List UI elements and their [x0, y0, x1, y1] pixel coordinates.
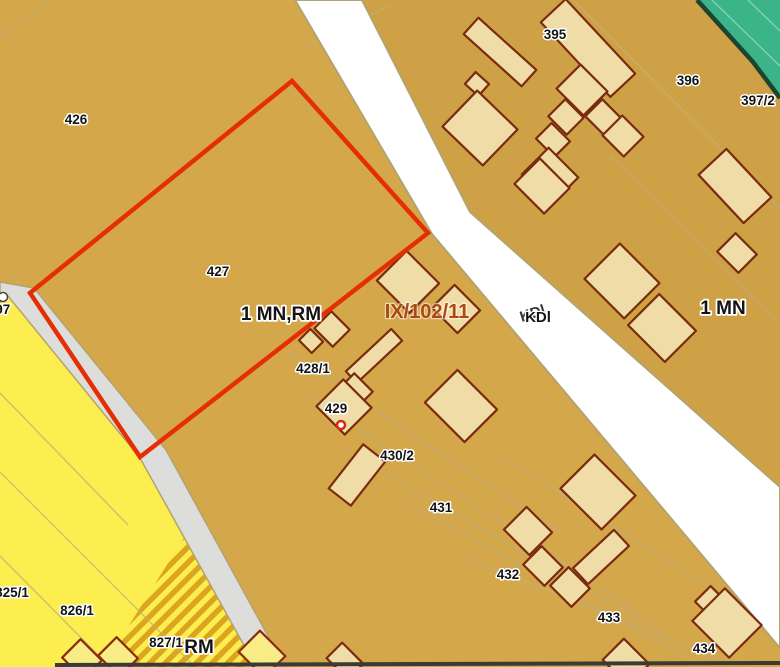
parcel-label-430-2: 430/2 [380, 448, 414, 463]
zone-label-rm: RM [184, 637, 214, 658]
parcel-label-897: 897 [0, 302, 10, 317]
map-viewport[interactable]: 426 427 428/1 429 430/2 431 432 433 434 … [0, 0, 780, 667]
parcel-label-395: 395 [544, 27, 567, 42]
parcel-label-429: 429 [325, 401, 348, 416]
parcel-label-397-2: 397/2 [741, 93, 775, 108]
point-marker-icon [337, 421, 345, 429]
case-reference-label: IX/102/11 [385, 301, 470, 323]
utility-marker-icon [0, 293, 8, 302]
parcel-label-432: 432 [497, 567, 520, 582]
parcel-label-826-1: 826/1 [60, 603, 94, 618]
parcel-label-434: 434 [693, 641, 716, 656]
parcel-label-427: 427 [207, 264, 230, 279]
parcel-label-396: 396 [677, 73, 700, 88]
parcel-label-825-1: 825/1 [0, 585, 29, 600]
zone-label-mn: 1 MN [700, 298, 745, 319]
parcel-label-426: 426 [65, 112, 88, 127]
parcel-label-428-1: 428/1 [296, 361, 330, 376]
map-border-line [55, 663, 780, 665]
road-class-label: KDl [525, 309, 551, 326]
zone-label-mn-rm: 1 MN,RM [241, 304, 321, 325]
map-canvas[interactable]: 426 427 428/1 429 430/2 431 432 433 434 … [0, 0, 780, 667]
parcel-label-431: 431 [430, 500, 453, 515]
parcel-label-827-1: 827/1 [149, 635, 183, 650]
parcel-label-433: 433 [598, 610, 621, 625]
